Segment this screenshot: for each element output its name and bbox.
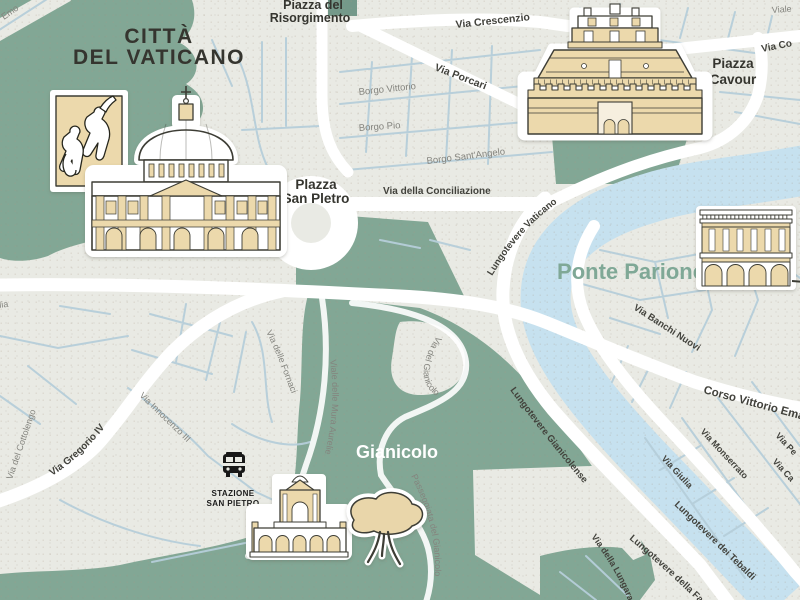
area-label-san-pietro-line1: Plazza [295,177,337,192]
fountain-base [250,552,348,557]
area-label-cavour-line1: Piazza [712,56,754,71]
fountain-niche [292,502,308,522]
colonnade-frieze [702,223,790,227]
basilica-drum [144,160,228,182]
station-icon-band [223,463,245,466]
fountain-attic [274,522,326,528]
area-label-risorgimento-line2: Risorgimento [270,11,351,25]
station-icon-light-right [238,467,241,470]
station-icon-window-left [226,457,233,462]
castle-top-windows [588,18,640,26]
colonnade-top-cornice [700,210,792,215]
area-label-san-pietro-line2: San Pletro [283,191,350,206]
station-icon-light-left [226,467,229,470]
map-viewport: Emo Viale Via Co Via Crescenzio Via Porc… [0,0,800,600]
castle-round-window-right [644,64,649,69]
fountain-pilaster-left [283,494,287,522]
colonnade-band [702,258,790,262]
colonnade-connector-line [792,281,800,282]
area-label-cavour-line2: Cavour [710,72,757,87]
area-label-gianicolo: Gianicolo [356,442,438,462]
street-label-conciliazione: Via della Conciliazione [383,186,491,197]
basilica-entablature [92,220,280,227]
colonnade-cornice-2 [700,219,792,223]
piazza-san-pietro-center [291,203,331,243]
fountain-pilaster-right [313,494,317,522]
area-label-vatican-line2: DEL VATICANO [73,46,245,69]
fountain-arches [259,536,340,553]
castle-drum-door [609,60,621,78]
area-label-vatican-line1: CITTÀ [124,25,193,48]
colonnade-building [696,206,796,290]
castle-round-window-left [582,64,587,69]
station-icon-wheel-right [238,473,242,477]
castle-mid-windows [584,31,645,42]
area-label-ponte-parione: Ponte Parione [557,259,705,284]
station-icon-wheel-left [226,473,230,477]
basilica-lantern-ball [184,99,189,104]
basilica-lantern [179,104,193,120]
station-label-line1: STAZIONE [211,489,254,498]
colonnade-entablature [700,253,792,258]
map-canvas[interactable]: Emo Viale Via Co Via Crescenzio Via Porc… [0,0,800,600]
castle-cap-band [568,42,662,48]
station-icon-window-right [235,457,242,462]
street-label-viale: Viale [771,4,792,15]
